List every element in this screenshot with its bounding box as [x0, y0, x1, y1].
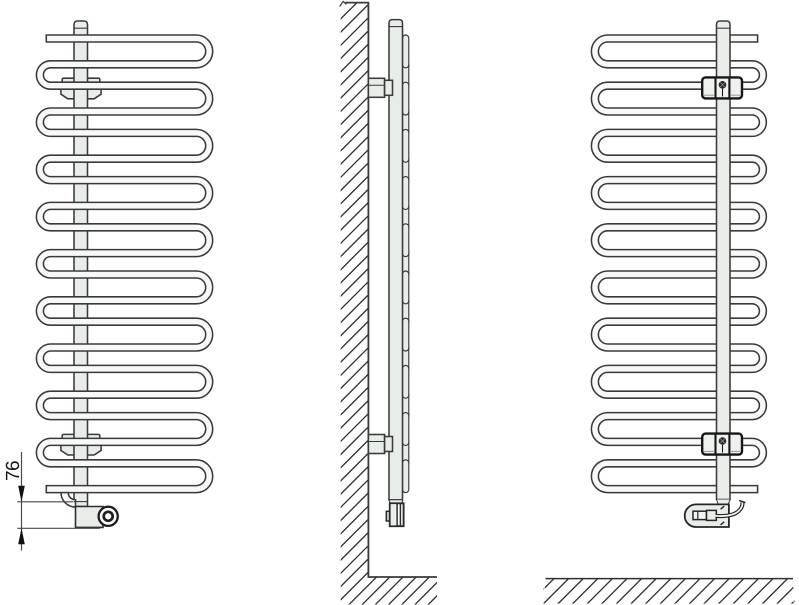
- svg-text:76: 76: [3, 461, 24, 481]
